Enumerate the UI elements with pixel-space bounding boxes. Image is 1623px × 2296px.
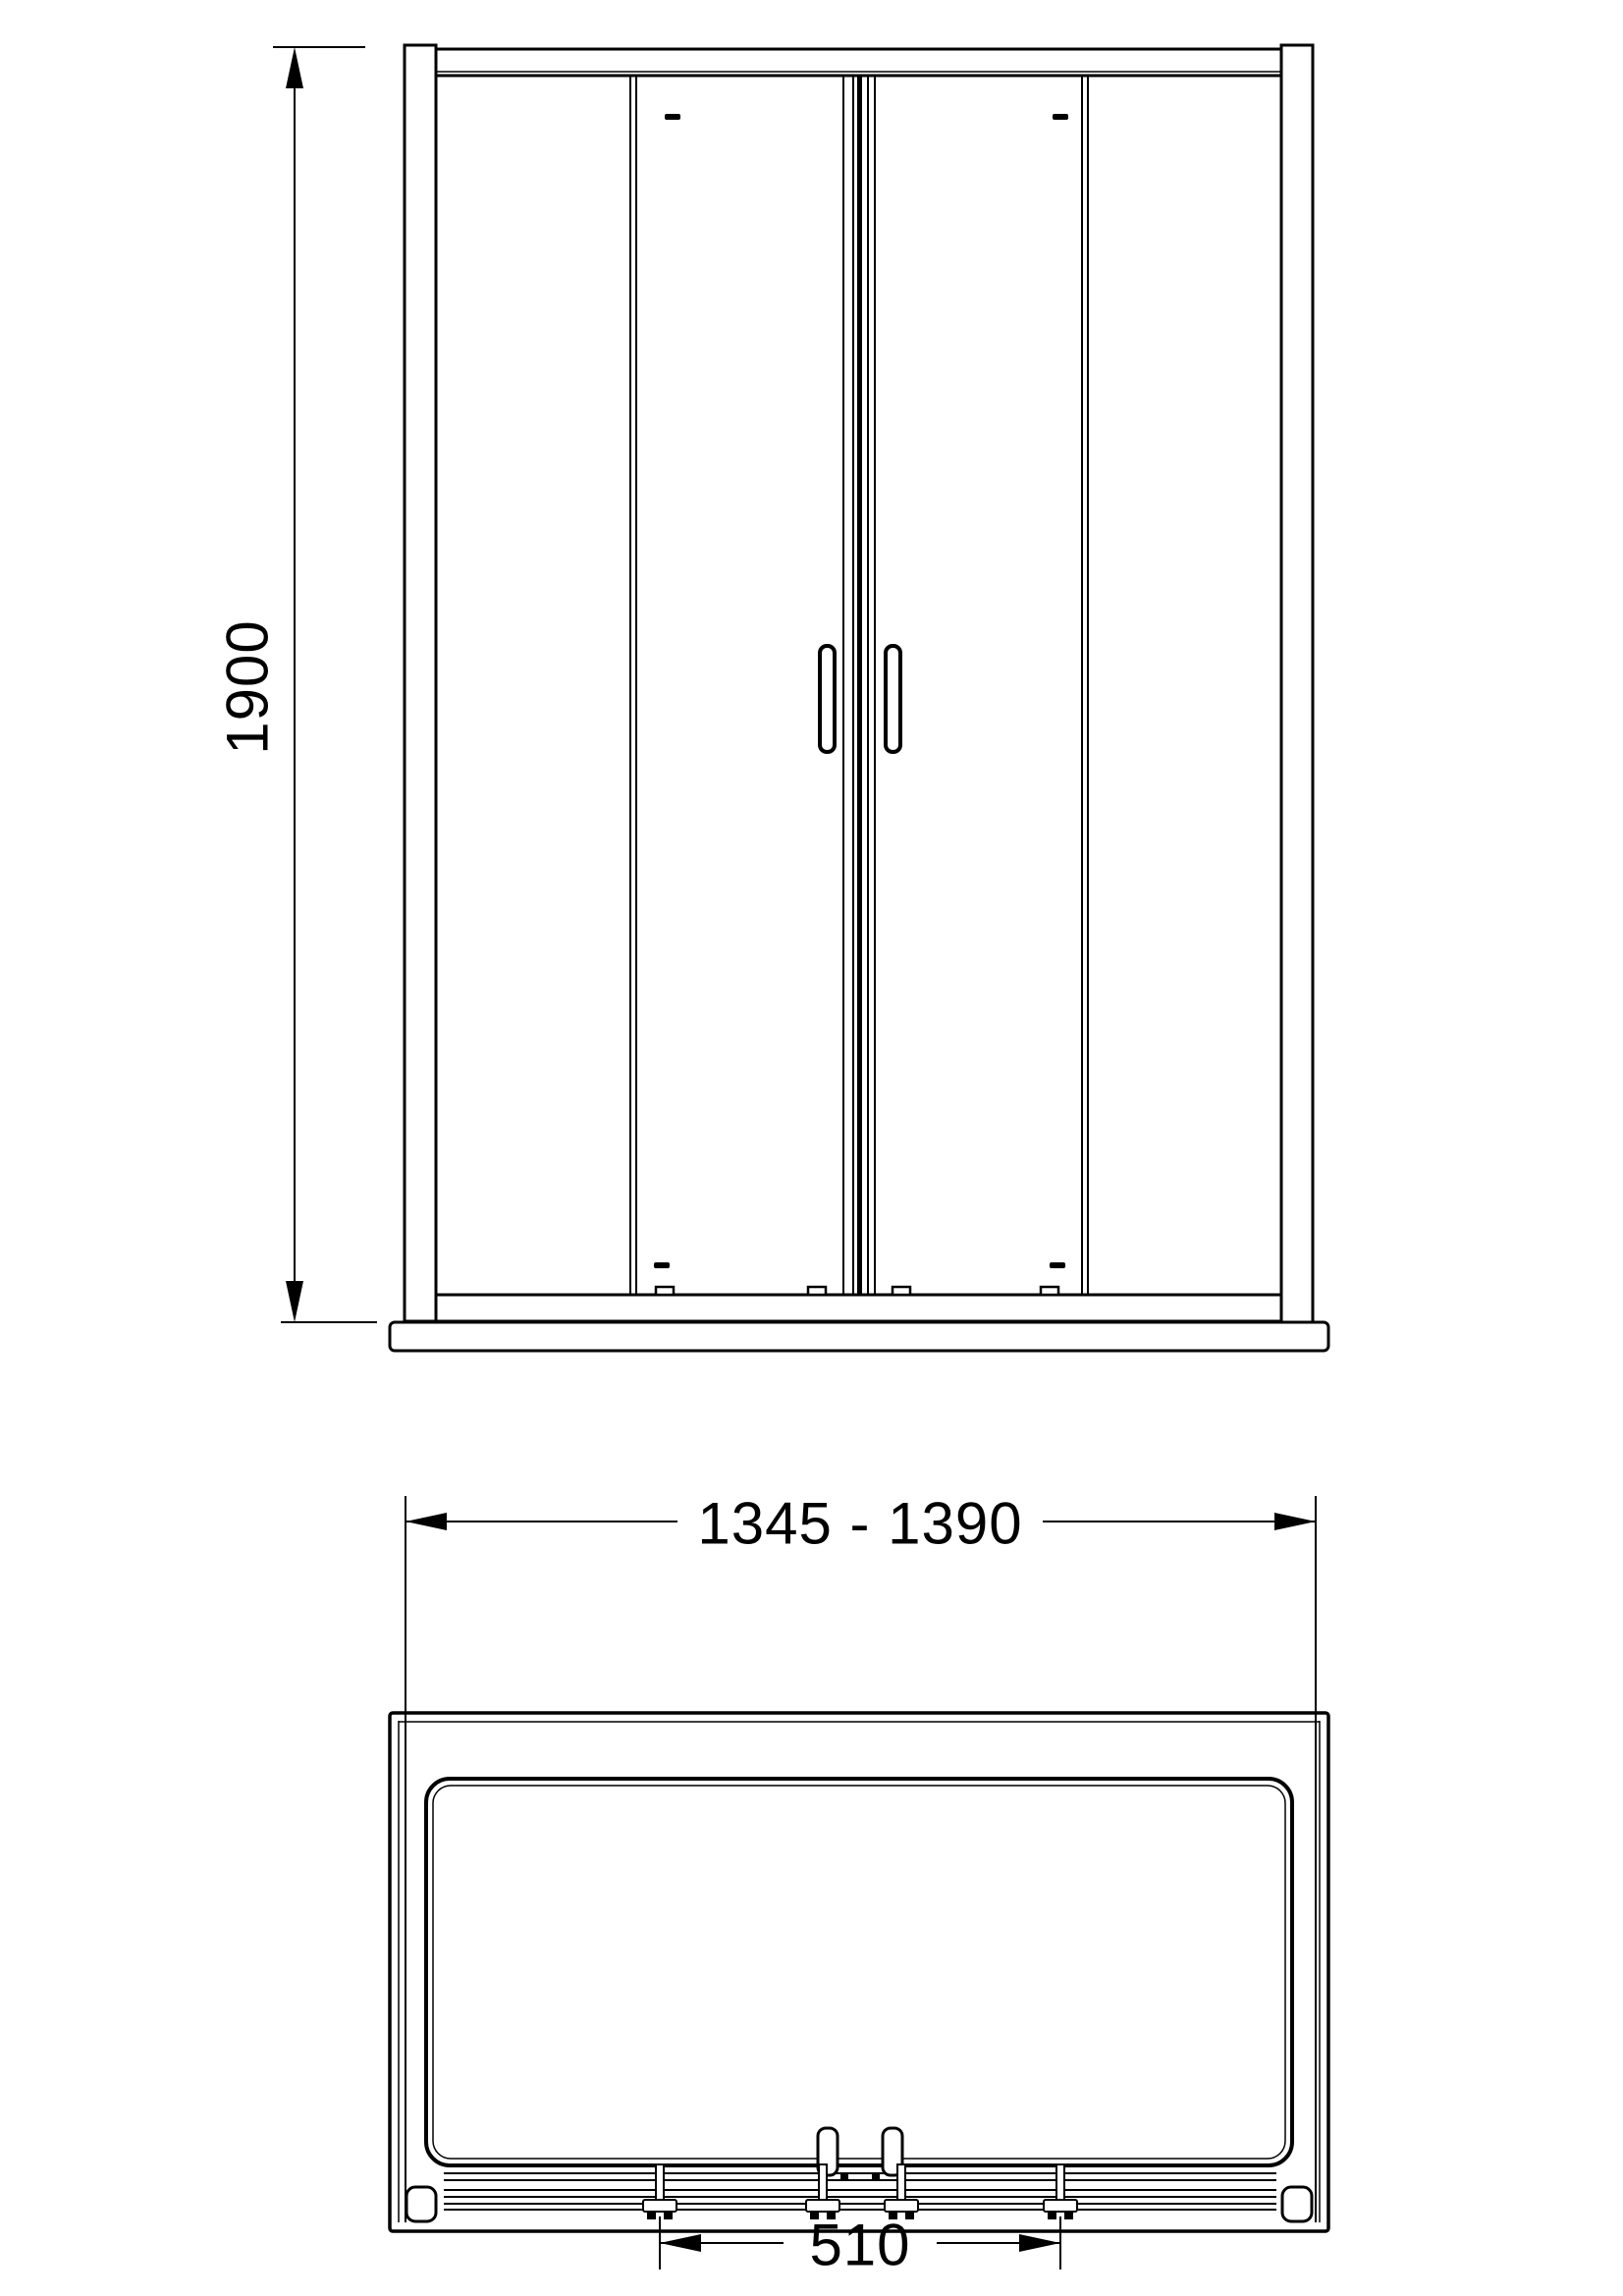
bottom-roller-guide <box>808 1287 826 1295</box>
plan-enclosure <box>390 1713 1328 2231</box>
arrowhead-left-icon <box>406 1513 447 1530</box>
right-door-handle <box>886 646 900 752</box>
shower-tray-front <box>390 1322 1328 1351</box>
roller-wheel <box>664 2212 673 2219</box>
track-end-cap-left <box>406 2187 436 2221</box>
arrowhead-right-icon <box>1274 1513 1316 1530</box>
roller-screw-mark <box>1050 1262 1065 1268</box>
glass-panels <box>630 76 1088 1295</box>
opening-dimension-label: 510 <box>809 2213 910 2278</box>
roller-foot <box>643 2200 676 2212</box>
bottom-roller-guide <box>656 1287 674 1295</box>
arrowhead-up-icon <box>286 47 303 88</box>
roller-wheel <box>1048 2212 1056 2219</box>
interlock-mark <box>840 2173 848 2181</box>
bottom-roller-guide <box>1041 1287 1058 1295</box>
roller-screw-mark <box>654 1262 670 1268</box>
roller-plate <box>656 2164 664 2201</box>
roller-wheel <box>1064 2212 1073 2219</box>
roller-screw-mark <box>665 114 680 120</box>
arrowhead-left-icon <box>660 2234 701 2252</box>
frame-post-right <box>1281 45 1313 1322</box>
left-door-handle <box>820 646 835 752</box>
technical-drawing-canvas: 1900 <box>0 0 1623 2296</box>
roller-plate <box>819 2164 827 2201</box>
plan-tray-rim <box>426 1779 1292 2165</box>
roller-plate <box>897 2164 905 2201</box>
roller-foot <box>1044 2200 1077 2212</box>
plan-view: 1345 - 1390 510 <box>390 1491 1328 2278</box>
bottom-rail <box>436 1295 1281 1321</box>
height-dimension: 1900 <box>215 47 378 1322</box>
arrowhead-right-icon <box>1019 2234 1060 2252</box>
roller-foot <box>806 2200 839 2212</box>
front-elevation-view: 1900 <box>215 45 1329 1351</box>
roller-wheel <box>647 2212 656 2219</box>
width-dimension-label: 1345 - 1390 <box>697 1491 1022 1557</box>
center-meeting-stile <box>857 76 862 1295</box>
frame-post-left <box>405 45 436 1321</box>
bottom-roller-guide <box>893 1287 910 1295</box>
arrowhead-down-icon <box>286 1281 303 1322</box>
roller-foot <box>885 2200 918 2212</box>
track-end-cap-right <box>1282 2187 1312 2221</box>
roller-screw-mark <box>1053 114 1068 120</box>
roller-plate <box>1056 2164 1064 2201</box>
drawing-svg: 1900 <box>0 0 1623 2296</box>
height-dimension-label: 1900 <box>215 619 281 754</box>
interlock-mark <box>872 2173 880 2181</box>
